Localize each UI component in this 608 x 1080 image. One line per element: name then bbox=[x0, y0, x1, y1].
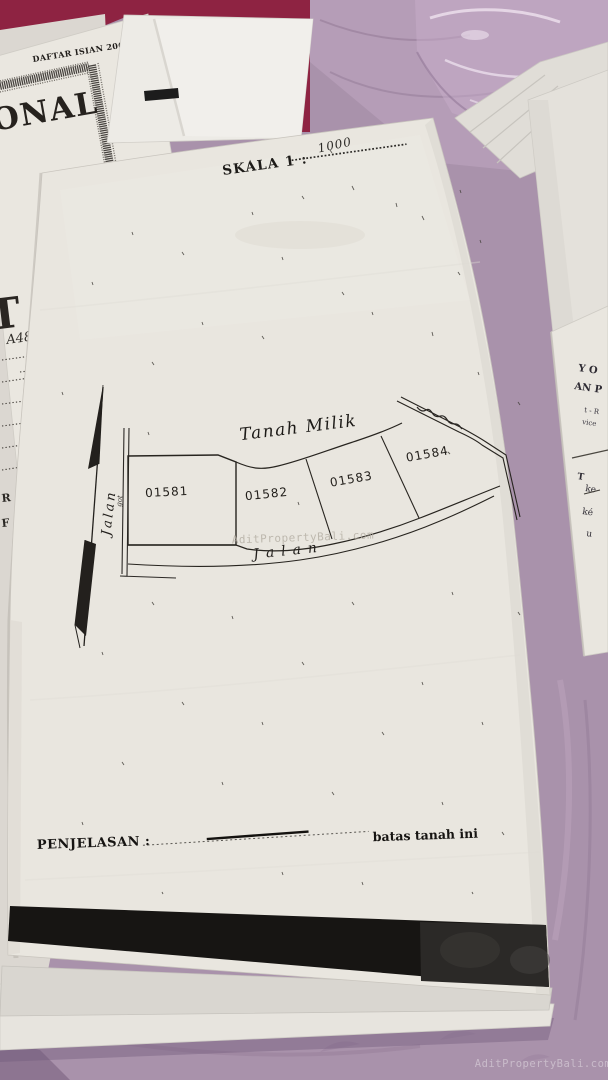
photo-scene: DAFTAR ISIAN 206 ONAL T A48 R F Y O AN P… bbox=[0, 0, 608, 1080]
right-doc-fragment: ké bbox=[582, 506, 594, 518]
land-survey-photo: DAFTAR ISIAN 206 ONAL T A48 R F Y O AN P… bbox=[0, 0, 608, 1080]
top-center-paper bbox=[107, 15, 313, 143]
form-fragment-f: F bbox=[1, 516, 10, 530]
drain-note: got bbox=[115, 495, 124, 508]
watermark-bottom-right: AditPropertyBali.com bbox=[475, 1058, 608, 1070]
parcel-label-01581: 01581 bbox=[145, 484, 189, 500]
